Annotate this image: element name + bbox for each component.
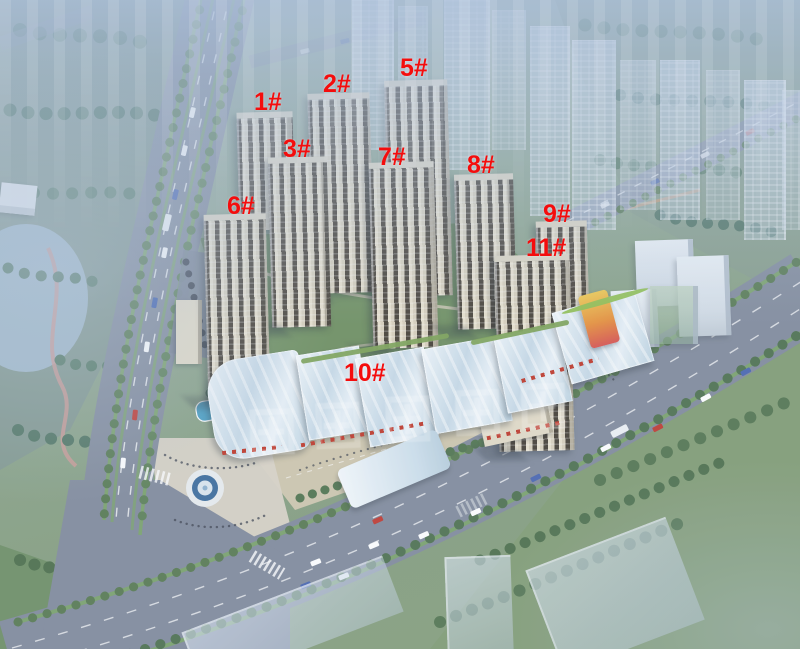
building-label-1: 1# <box>254 90 282 115</box>
building-label-3: 3# <box>283 137 311 162</box>
building-label-8: 8# <box>467 153 495 178</box>
building-label-2: 2# <box>323 72 351 97</box>
watermark <box>249 392 571 463</box>
building-label-11: 11# <box>526 236 566 261</box>
building-label-10: 10# <box>344 361 386 386</box>
blue-tint <box>0 0 800 649</box>
aerial-masterplan-rendering: 1# 2# 3# 5# 6# 7# 8# 9# 10# 11# <box>0 0 800 649</box>
building-label-5: 5# <box>400 56 428 81</box>
building-label-7: 7# <box>378 145 406 170</box>
building-label-6: 6# <box>227 194 255 219</box>
building-label-9: 9# <box>543 202 571 227</box>
